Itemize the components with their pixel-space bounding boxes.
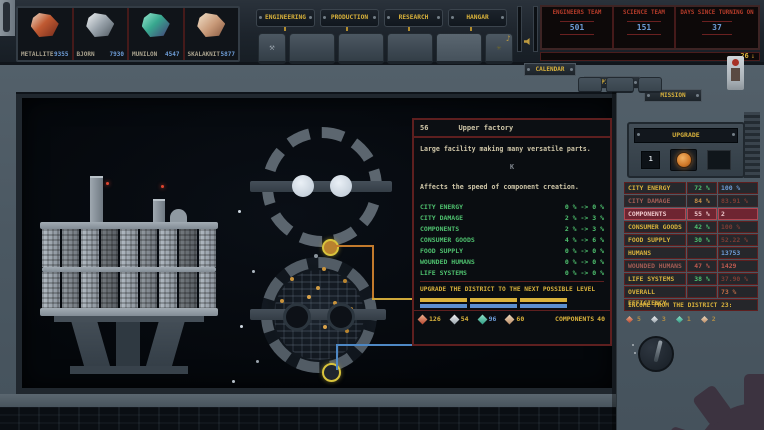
factory-machine-art — [40, 168, 220, 380]
knob-tick — [634, 352, 636, 354]
menu-keys — [578, 77, 662, 93]
munilon-icon — [477, 314, 487, 324]
pedestal-column — [116, 322, 140, 368]
component-glyph: K — [414, 163, 610, 171]
skalaknit-icon — [505, 314, 515, 324]
tab-engineering[interactable]: ENGINEERING — [256, 9, 315, 27]
wrench-icon: ⚒ — [269, 43, 274, 53]
info-panel-header: 56 Upper factory — [414, 120, 610, 138]
wall-vent — [744, 112, 760, 178]
district-description: Large facility making many versatile par… — [420, 145, 604, 154]
upgrade-cost-row: 126 54 96 60 COMPONENTS 40 — [414, 310, 610, 323]
metallite-icon — [418, 314, 428, 324]
engineers-team-box: ENGINEERS TEAM 501 — [542, 7, 614, 48]
resource-slot-bjorn: BJORN7930 — [74, 8, 130, 60]
science-team-value: 151 — [627, 21, 661, 35]
foot — [70, 366, 188, 374]
district-row-wounded-humans[interactable]: WOUNDED HUMANS 47 % 1429 — [624, 260, 758, 272]
tab-research[interactable]: RESEARCH — [384, 9, 443, 27]
tab-indicator — [408, 27, 410, 31]
frame-lever — [3, 2, 10, 32]
music-note-icon: ♪ — [506, 34, 511, 43]
upgrade-orb-icon — [676, 152, 692, 168]
main-tabs: ENGINEERING PRODUCTION RESEARCH HANGAR — [256, 9, 507, 27]
crew-figure-icon — [727, 56, 744, 90]
days-counter-box: DAYS SINCE TURNING ON 37 — [676, 7, 758, 48]
blank-key-3[interactable] — [387, 33, 433, 64]
income-label: INCOME FROM THE DISTRICT 23: — [624, 299, 758, 311]
top-rail — [40, 222, 218, 229]
ring-axle — [250, 181, 392, 192]
menu-key-2[interactable] — [606, 77, 634, 93]
tool-keys: ⚒ ✳ — [258, 33, 513, 64]
figure-head — [732, 59, 739, 66]
disc-hub-right[interactable] — [327, 303, 355, 331]
bug-icon: ✳ — [497, 43, 502, 52]
menu-key-3[interactable] — [638, 77, 662, 93]
dust-sparkles — [238, 210, 241, 213]
district-row-life-systems[interactable]: LIFE SYSTEMS 38 % 37.90 % — [624, 273, 758, 285]
skalaknit-mineral-icon — [197, 13, 225, 37]
bjorn-icon — [449, 314, 459, 324]
district-stats-table: CITY ENERGY 72 % 100 % CITY DAMAGE 84 % … — [624, 182, 758, 325]
music-volume-slider[interactable] — [517, 6, 522, 52]
metallite-mineral-icon — [31, 13, 59, 37]
metallite-icon — [626, 315, 633, 322]
figure-body — [731, 68, 740, 81]
district-title: Upper factory — [458, 124, 513, 132]
tab-production[interactable]: PRODUCTION — [320, 9, 379, 27]
engineers-team-value: 501 — [560, 21, 594, 35]
connector-line-yellow — [372, 298, 412, 300]
upgrade-count: 1 — [641, 151, 660, 169]
leg — [145, 322, 184, 368]
wrench-key[interactable]: ⚒ — [258, 33, 286, 64]
connector-line-blue — [336, 344, 338, 370]
upgrade-stat-list: CITY ENERGY0 % -> 0 % CITY DAMAGE2 % -> … — [420, 202, 604, 279]
district-info-panel: 56 Upper factory Large facility making m… — [412, 118, 612, 346]
disc-lights — [316, 286, 320, 290]
gear-icon — [652, 362, 764, 430]
district-row-overall-efficiency[interactable]: OVERALL EFFICIENCY 73 % — [624, 286, 758, 298]
knob-lever — [654, 340, 663, 362]
tab-indicator — [346, 27, 348, 31]
district-row-components-selected[interactable]: COMPONENTS 55 % 2 — [624, 208, 758, 220]
munilon-mineral-icon — [142, 13, 170, 37]
district-row-city-energy[interactable]: CITY ENERGY 72 % 100 % — [624, 182, 758, 194]
selected-node-lower[interactable] — [322, 363, 341, 382]
connector-line-blue — [336, 344, 412, 346]
disc-axle — [250, 309, 386, 320]
panel-seam — [612, 92, 617, 430]
module-row — [42, 229, 216, 267]
chimney — [153, 199, 165, 224]
down-arrow-icon: ↓ — [751, 53, 755, 60]
district-row-consumer-goods[interactable]: CONSUMER GOODS 42 % 100 % — [624, 221, 758, 233]
game-screen: METALLITE9355 BJORN7930 MUNILON4547 SKAL… — [0, 0, 764, 430]
ring-hub-right[interactable] — [330, 175, 352, 197]
days-counter-value: 37 — [702, 21, 732, 35]
science-team-box: SCIENCE TEAM 151 — [614, 7, 676, 48]
bjorn-mineral-icon — [86, 13, 114, 37]
team-panel: ENGINEERS TEAM 501 SCIENCE TEAM 151 DAYS… — [540, 5, 760, 50]
dome — [170, 209, 187, 222]
selected-node-upper[interactable] — [322, 239, 339, 256]
district-effect: Affects the speed of component creation. — [420, 183, 604, 192]
resource-panel: METALLITE9355 BJORN7930 MUNILON4547 SKAL… — [16, 6, 240, 62]
blank-key-1[interactable] — [289, 33, 335, 64]
district-row-food-supply[interactable]: FOOD SUPPLY 30 % 52.22 % — [624, 234, 758, 246]
connector-line-orange — [372, 245, 374, 300]
blank-key-4[interactable] — [436, 33, 482, 64]
resource-slot-munilon: MUNILON4547 — [129, 8, 185, 60]
bjorn-icon — [651, 315, 658, 322]
upgrade-label-plate: UPGRADE — [634, 128, 738, 143]
blank-key-2[interactable] — [338, 33, 384, 64]
disc-hub-left[interactable] — [283, 303, 311, 331]
tab-hangar[interactable]: HANGAR — [448, 9, 507, 27]
munilon-icon — [676, 315, 683, 322]
upgrade-button[interactable] — [670, 149, 696, 171]
resource-slot-metallite: METALLITE9355 — [18, 8, 74, 60]
warning-light — [106, 182, 109, 185]
ring-hub-left[interactable] — [292, 175, 314, 197]
district-id: 56 — [420, 124, 428, 132]
income-row: 5 3 1 2 — [624, 313, 758, 325]
sound-volume-slider[interactable] — [533, 6, 538, 52]
bottom-circuit-texture — [0, 407, 616, 430]
upgrade-note: UPGRADE THE DISTRICT TO THE NEXT POSSIBL… — [420, 281, 604, 294]
chimney — [90, 176, 103, 224]
knob-tick — [632, 344, 634, 346]
resource-slot-skalaknit: SKALAKNIT5877 — [185, 8, 239, 60]
components-cost-label: COMPONENTS — [555, 315, 594, 323]
district-row-city-damage[interactable]: CITY DAMAGE 84 % 83.91 % — [624, 195, 758, 207]
module-row — [42, 272, 216, 308]
components-cost-value: 40 — [597, 315, 605, 323]
connector-line-orange — [335, 245, 374, 247]
upgrade-empty-slot[interactable] — [707, 150, 731, 170]
upgrade-progress-bars — [420, 298, 604, 308]
leg — [71, 322, 110, 368]
upgrade-panel: UPGRADE 1 — [627, 122, 745, 178]
skalaknit-icon — [701, 315, 708, 322]
tab-indicator — [284, 27, 286, 31]
warning-light — [161, 185, 164, 188]
bottom-ledge — [0, 394, 616, 407]
calendar-button[interactable]: CALENDAR — [524, 63, 576, 76]
bottom-rail — [40, 308, 218, 316]
district-row-humans[interactable]: HUMANS 13753 — [624, 247, 758, 259]
tab-indicator — [470, 27, 472, 31]
menu-key-1[interactable] — [578, 77, 602, 93]
